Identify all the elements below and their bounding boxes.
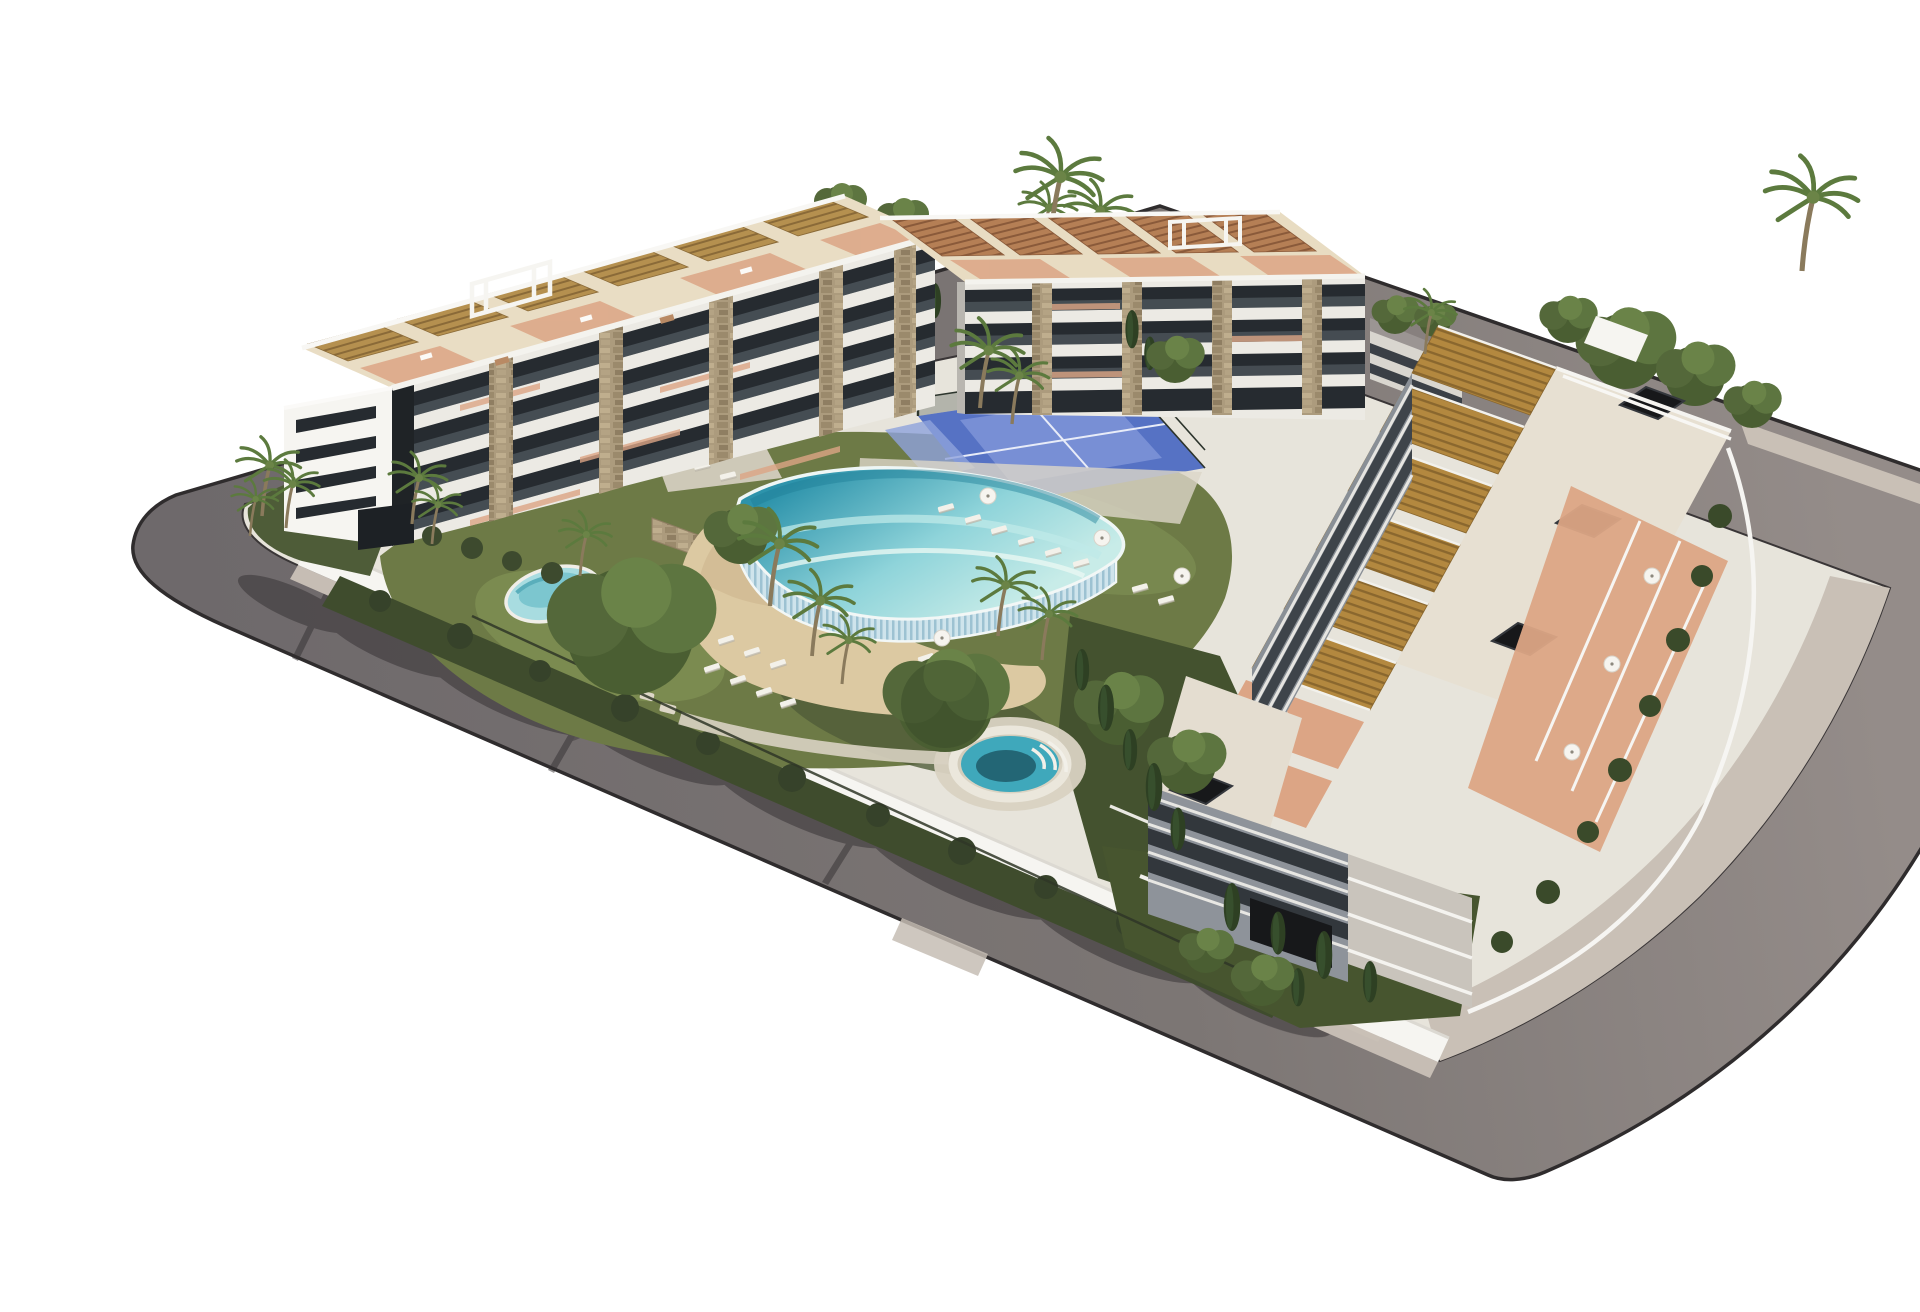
garage-entrance <box>358 503 414 550</box>
rendering-canvas <box>40 16 1920 1296</box>
rooftop-pergolas <box>890 213 1316 256</box>
end-shade <box>957 282 965 414</box>
architectural-rendering: architectural-3d-rendering <box>40 16 1920 1296</box>
